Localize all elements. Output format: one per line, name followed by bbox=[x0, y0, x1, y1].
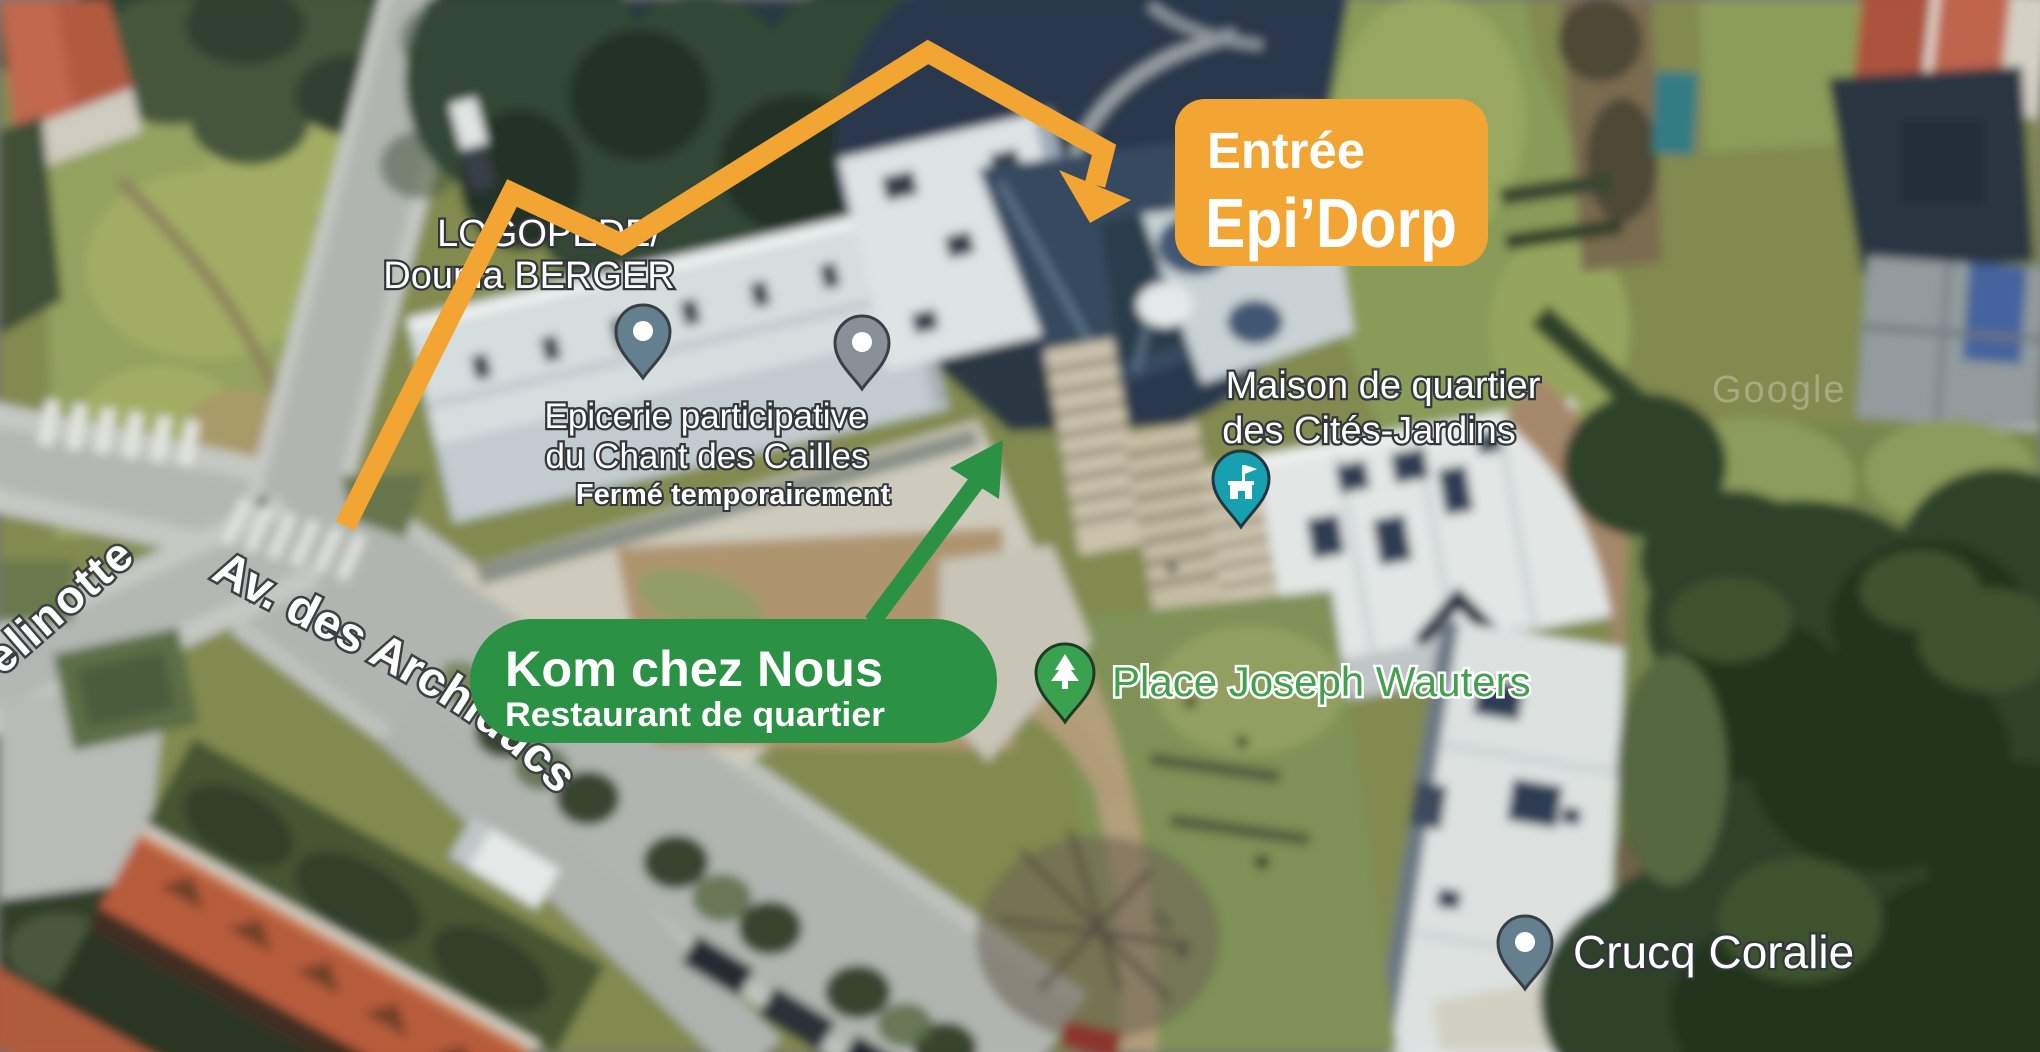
svg-text:des Cités-Jardins: des Cités-Jardins bbox=[1222, 410, 1516, 452]
svg-text:Entrée: Entrée bbox=[1207, 122, 1365, 179]
svg-text:Maison de quartier: Maison de quartier bbox=[1226, 365, 1541, 407]
svg-text:Epicerie participative: Epicerie participative bbox=[545, 397, 868, 436]
svg-text:Kom chez Nous: Kom chez Nous bbox=[505, 641, 883, 697]
svg-text:Dounia BERGER: Dounia BERGER bbox=[383, 255, 674, 297]
svg-text:Restaurant de quartier: Restaurant de quartier bbox=[505, 696, 885, 734]
svg-text:Google: Google bbox=[1712, 369, 1847, 411]
svg-text:Crucq Coralie: Crucq Coralie bbox=[1573, 926, 1854, 978]
svg-text:du Chant des Cailles: du Chant des Cailles bbox=[546, 437, 869, 476]
svg-text:Epi’Dorp: Epi’Dorp bbox=[1205, 184, 1457, 262]
svg-text:Place Joseph Wauters: Place Joseph Wauters bbox=[1112, 658, 1531, 705]
svg-text:Fermé temporairement: Fermé temporairement bbox=[576, 479, 891, 511]
